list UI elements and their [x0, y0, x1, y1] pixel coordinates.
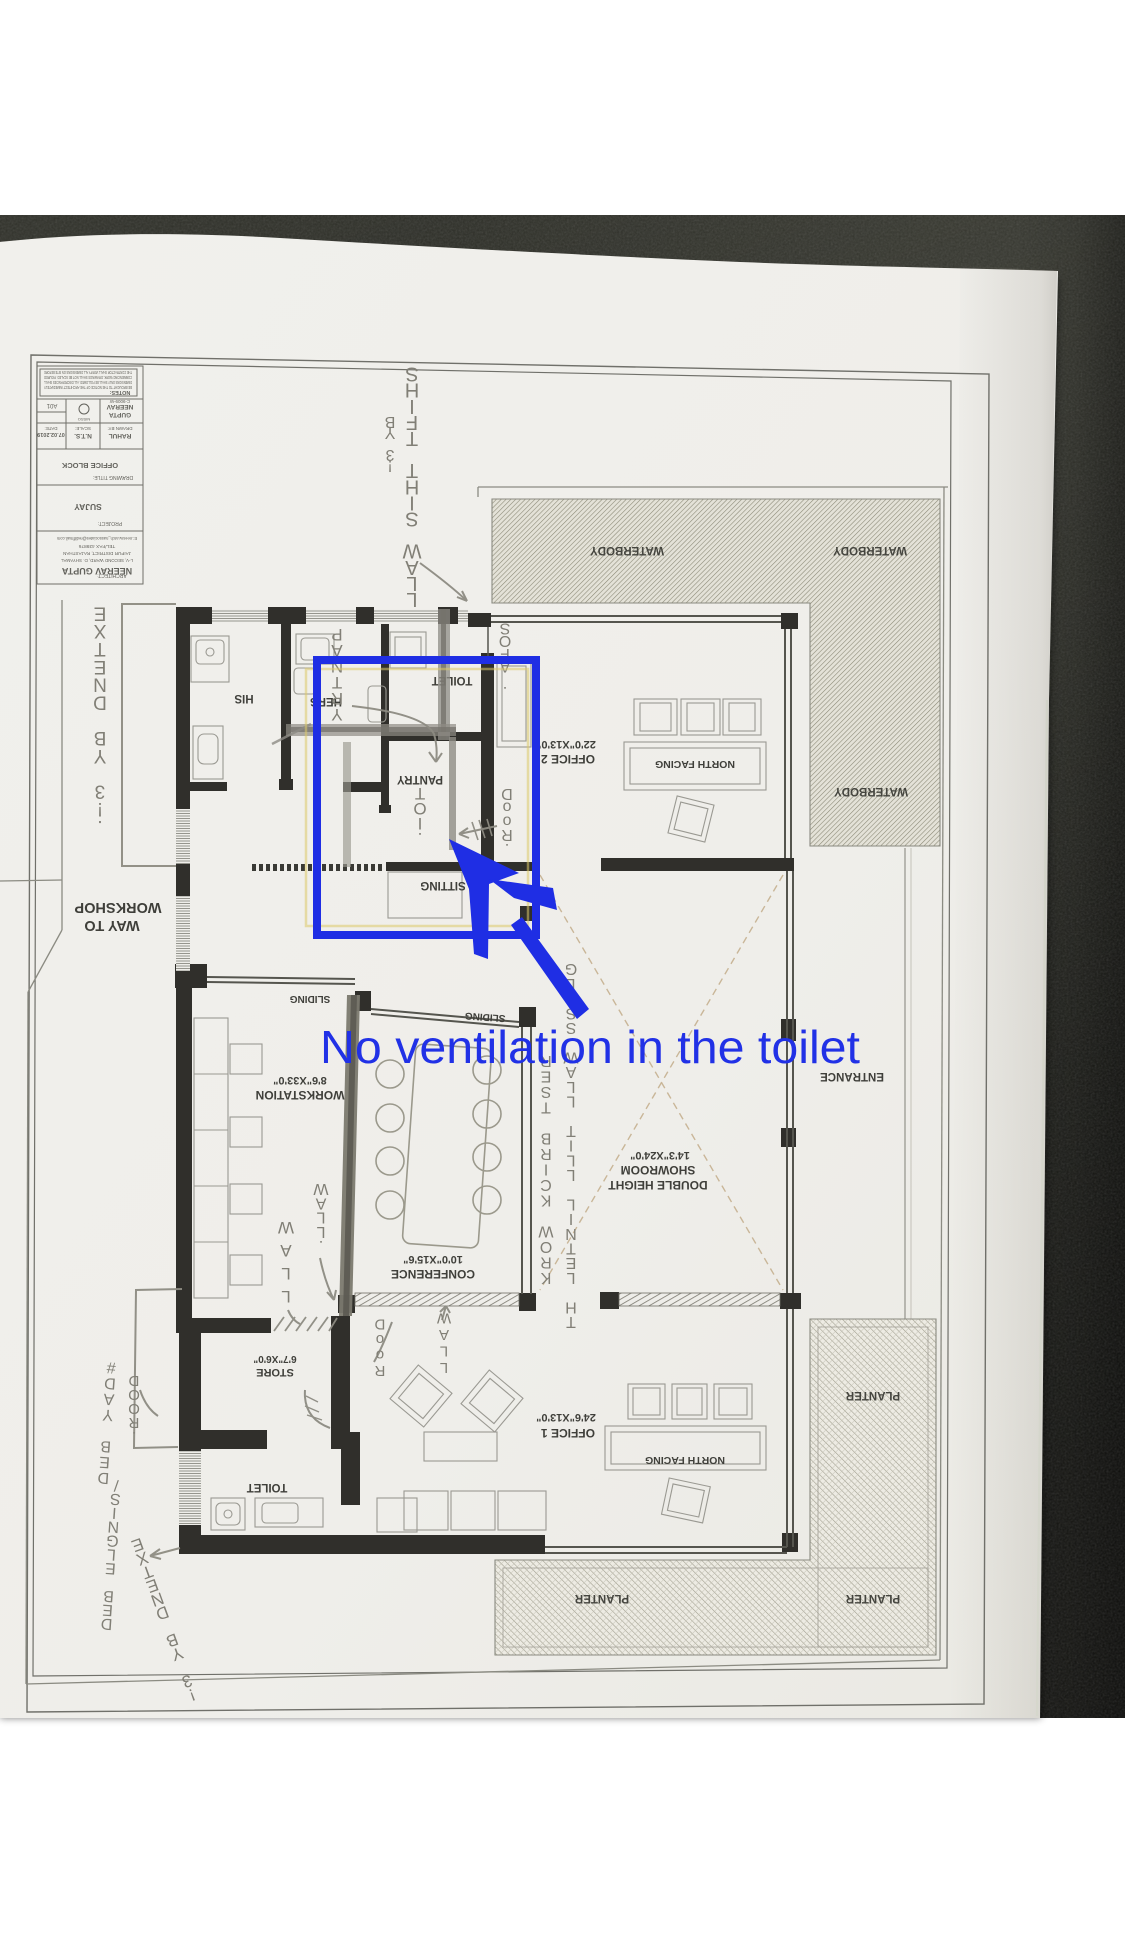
svg-text:YRTNAP: YRTNAP [328, 628, 347, 724]
svg-text:DOUBLE HEIGHT: DOUBLE HEIGHT [608, 1178, 708, 1192]
svg-text:HIS: HIS [234, 692, 254, 704]
svg-text:A01: A01 [46, 402, 57, 408]
svg-text:LLAW SIHT TFIHS: LLAW SIHT TFIHS [401, 368, 423, 610]
svg-text:WORKSTATION: WORKSTATION [256, 1088, 345, 1102]
svg-text:SHOWROOM: SHOWROOM [621, 1163, 696, 1177]
svg-text:No ventilation in the toilet: No ventilation in the toilet [320, 1021, 860, 1073]
svg-text:.ROOD: .ROOD [126, 1375, 143, 1445]
svg-text:WATERBODY: WATERBODY [590, 544, 664, 556]
svg-text:TOILET: TOILET [432, 674, 473, 686]
svg-text:.RooD: .RooD [499, 788, 516, 857]
svg-text:10'0"X15'6": 10'0"X15'6" [403, 1253, 463, 1265]
svg-text:NORTH FACING: NORTH FACING [645, 1454, 725, 1466]
svg-text:WORKSHOP: WORKSHOP [74, 899, 161, 915]
svg-text:RooD: RooD [372, 1317, 389, 1379]
svg-text:JAIPUR DISTRICT, RAJASTHAN: JAIPUR DISTRICT, RAJASTHAN [62, 550, 131, 556]
svg-text:LLAW: LLAW [436, 1310, 453, 1376]
svg-text:SLIDING: SLIDING [290, 993, 331, 1004]
svg-text:8'6"X33'0": 8'6"X33'0" [273, 1074, 327, 1086]
svg-text:SUJAY: SUJAY [74, 502, 102, 512]
svg-text:THE CONTRACTOR SHALL VERIFY AL: THE CONTRACTOR SHALL VERIFY ALL DIMENSIO… [44, 370, 132, 375]
svg-text:07.02.2019: 07.02.2019 [37, 431, 65, 437]
svg-text:6'7"X6'0": 6'7"X6'0" [253, 1353, 296, 1364]
svg-text:DRAWING TITLE:: DRAWING TITLE: [93, 474, 133, 480]
svg-text:COMMENCING WORK. DRAWINGS SHAL: COMMENCING WORK. DRAWINGS SHALL NOT BE S… [44, 375, 132, 380]
svg-text:WATERBODY: WATERBODY [834, 785, 908, 797]
svg-text:STORE: STORE [256, 1366, 294, 1378]
svg-text:!3 YB: !3 YB [382, 417, 399, 474]
svg-text:PLANTER: PLANTER [845, 1592, 900, 1604]
svg-text:WATERBODY: WATERBODY [833, 544, 907, 556]
svg-text:NORTH FACING: NORTH FACING [655, 758, 735, 770]
svg-text:L-V, SECOND WARD, D. SHYAMAL: L-V, SECOND WARD, D. SHYAMAL [61, 557, 133, 563]
svg-text:22'0"X13'0": 22'0"X13'0" [536, 738, 596, 750]
svg-text:14'3"X24'0": 14'3"X24'0" [630, 1149, 690, 1161]
svg-text:DIMENSIONS ONLY SHALL BE FOLLO: DIMENSIONS ONLY SHALL BE FOLLOWED. ALL D… [44, 380, 132, 385]
svg-text:CONFERENCE: CONFERENCE [391, 1267, 475, 1281]
svg-text:RAHUL: RAHUL [109, 432, 132, 439]
svg-text:NISSO: NISSO [78, 417, 90, 422]
svg-text:DRAWN BY:: DRAWN BY: [107, 426, 132, 431]
svg-text:.IOT: .IOT [411, 788, 430, 848]
svg-text:C-9009-W: C-9009-W [109, 399, 130, 404]
svg-text:PLANTER: PLANTER [845, 1389, 900, 1401]
svg-text:TEL/FAX 439876: TEL/FAX 439876 [78, 543, 115, 549]
svg-text:N.T.S.: N.T.S. [74, 432, 92, 439]
svg-text:LLAW: LLAW [277, 1214, 296, 1306]
svg-text:NOTES:: NOTES: [109, 389, 130, 395]
svg-text:OFFICE 2: OFFICE 2 [541, 752, 595, 766]
svg-text:OFFICE 1: OFFICE 1 [541, 1426, 595, 1440]
svg-text:DATE:: DATE: [45, 426, 58, 431]
svg-text:SCALE:: SCALE: [75, 426, 91, 431]
svg-text:24'6"X13'0": 24'6"X13'0" [536, 1411, 596, 1423]
svg-text:PLANTER: PLANTER [574, 1592, 629, 1604]
svg-text:PANTRY: PANTRY [397, 773, 443, 785]
svg-text:.!3 YB DNETXE: .!3 YB DNETXE [90, 606, 111, 837]
svg-text:.LLAW: .LLAW [313, 1183, 330, 1254]
svg-text:OFFICE BLOCK: OFFICE BLOCK [61, 461, 118, 470]
svg-text:TOILET: TOILET [247, 1481, 288, 1493]
svg-text:GUPTA: GUPTA [109, 411, 132, 418]
svg-text:SITTING: SITTING [420, 879, 465, 891]
svg-text:NEERAV GUPTA: NEERAV GUPTA [61, 566, 132, 576]
svg-text:KROW KCIRB TSER: KROW KCIRB TSER [538, 1054, 555, 1287]
svg-text:E:.neerav.arch_nassociates@red: E:.neerav.arch_nassociates@rediffmail.co… [57, 535, 137, 541]
svg-text:PROJECT:: PROJECT: [98, 520, 122, 526]
svg-text:WAY TO: WAY TO [84, 917, 139, 933]
